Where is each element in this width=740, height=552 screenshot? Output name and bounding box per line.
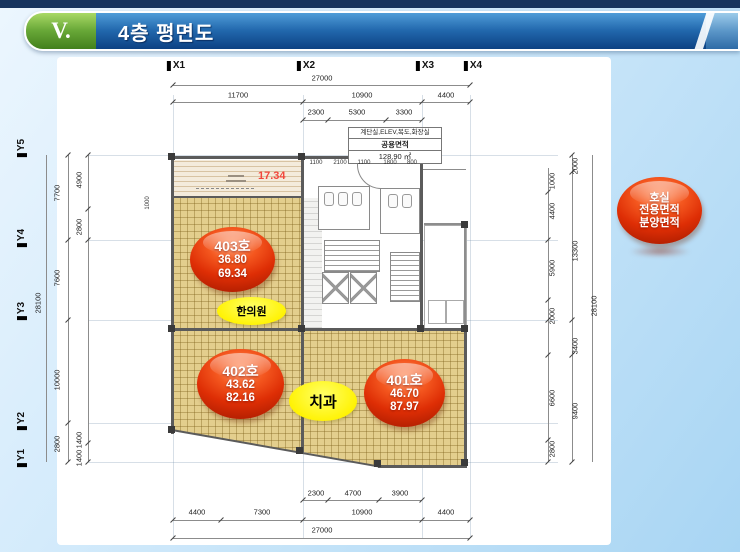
dim: 4400	[548, 203, 557, 220]
column	[417, 325, 424, 332]
column	[461, 221, 468, 228]
axis-y1: Y1	[17, 449, 27, 467]
room-402-exclusive-area: 43.62	[226, 379, 255, 392]
dim: 7600	[53, 270, 62, 287]
dim: 800	[407, 160, 417, 166]
column	[374, 460, 381, 467]
dim: 1000	[145, 196, 151, 209]
dim: 2300	[308, 108, 325, 117]
slide: V. 4층 평면도	[0, 0, 740, 552]
column	[168, 153, 175, 160]
legend-line-sale: 분양면적	[639, 217, 679, 230]
dim-line	[46, 155, 47, 462]
dim: 5900	[548, 260, 557, 277]
deck-dashed-line	[196, 188, 254, 189]
dim: 1100	[310, 160, 323, 166]
dim-line	[173, 538, 470, 539]
toilet-fixture	[324, 192, 334, 206]
shaft-box	[446, 300, 464, 324]
dim-line	[303, 120, 422, 121]
dim: 10900	[352, 91, 373, 100]
room-403-exclusive-area: 36.80	[218, 254, 247, 267]
dim: 1400	[75, 432, 84, 449]
dim: 1800	[383, 160, 396, 166]
room-403-sale-area: 69.34	[218, 268, 247, 281]
wall-wing-right	[464, 225, 466, 330]
tenant-bubble-hanuiwon: 한의원	[217, 297, 286, 325]
wall-terrace-bottom	[173, 196, 303, 198]
room-402-label: 402호	[222, 363, 258, 379]
dim-line	[88, 155, 89, 462]
dim: 10900	[352, 508, 373, 517]
room-bubble-402: 402호 43.62 82.16	[197, 349, 284, 419]
axis-x3: X3	[416, 61, 434, 71]
dim: 2800	[548, 441, 557, 458]
wall-bottom	[378, 465, 467, 468]
dim: 2800	[75, 219, 84, 236]
deck-label-lines	[228, 175, 244, 177]
stair-flight-main	[324, 240, 380, 272]
dim: 2000	[571, 158, 580, 175]
axis-y4: Y4	[17, 229, 27, 247]
elevator-shaft-2	[350, 272, 377, 304]
wall-wing-top	[424, 223, 466, 225]
dim: 9400	[571, 403, 580, 420]
legend-bubble-shadow	[629, 246, 691, 257]
dim: 4400	[438, 508, 455, 517]
gridline-x4	[470, 95, 471, 538]
toilet-fixture	[388, 194, 398, 208]
dim: 3400	[571, 338, 580, 355]
header-title-bar: 4층 평면도	[96, 13, 738, 49]
room-bubble-403: 403호 36.80 69.34	[190, 227, 275, 292]
dim-line	[303, 500, 422, 501]
section-number-badge: V.	[26, 13, 96, 49]
elevator-shaft-1	[322, 272, 349, 304]
axis-x4: X4	[464, 61, 482, 71]
room-bubble-401: 401호 46.70 87.97	[364, 359, 445, 427]
terrace-area-value: 17.34	[258, 170, 286, 182]
column	[298, 153, 305, 160]
room-402-sale-area: 82.16	[226, 392, 255, 405]
toilet-fixture	[352, 192, 362, 206]
common-area-table: 계단실,ELEV,복도,화장실 공용면적 128.90 ㎡	[348, 127, 442, 164]
column	[461, 325, 468, 332]
dim: 2100	[333, 160, 346, 166]
dim: 7700	[53, 185, 62, 202]
shaft-box	[428, 300, 446, 324]
dim: 2000	[548, 308, 557, 325]
axis-y2: Y2	[17, 412, 27, 430]
stair-flight-secondary	[390, 252, 420, 302]
tenant-chigwa-label: 치과	[309, 391, 337, 412]
dim-line	[68, 155, 69, 462]
dim-line	[173, 85, 470, 86]
axis-x1: X1	[167, 61, 185, 71]
axis-y5: Y5	[17, 139, 27, 157]
dim: 1100	[358, 160, 371, 166]
legend-line-exclusive: 전용면적	[639, 204, 679, 217]
page-title: 4층 평면도	[96, 17, 214, 46]
dim: 2800	[53, 436, 62, 453]
dim: 7300	[254, 508, 271, 517]
dim: 1000	[548, 173, 557, 190]
dim-right-total: 28100	[590, 296, 599, 317]
dim: 3900	[392, 489, 409, 498]
dim: 4400	[438, 91, 455, 100]
top-border-strip	[0, 0, 740, 8]
dim: 11700	[228, 91, 248, 100]
dim-bottom-total: 27000	[312, 526, 333, 535]
tenant-hanuiwon-label: 한의원	[236, 303, 266, 319]
toilet-fixture	[402, 194, 412, 208]
dim: 4700	[345, 489, 362, 498]
dim: 2300	[308, 489, 325, 498]
dim: 3300	[396, 108, 413, 117]
dim: 6600	[548, 390, 557, 407]
dim: 13300	[571, 241, 580, 262]
toilet-room-right	[380, 188, 420, 234]
legend-bubble: 호실 전용면적 분양면적	[617, 177, 702, 244]
dim: 5300	[349, 108, 366, 117]
wall-right	[464, 328, 467, 468]
column	[168, 325, 175, 332]
dim-line	[173, 102, 470, 103]
column	[296, 447, 303, 454]
common-area-title: 공용면적	[349, 139, 441, 151]
header-bar: V. 4층 평면도	[24, 11, 740, 51]
legend-line-room: 호실	[649, 192, 669, 205]
dim: 4900	[75, 172, 84, 189]
common-area-rooms: 계단실,ELEV,복도,화장실	[349, 128, 441, 139]
axis-x2: X2	[297, 61, 315, 71]
tenant-bubble-chigwa: 치과	[289, 381, 357, 421]
room-401-sale-area: 87.97	[390, 401, 419, 414]
dim: 1400	[75, 450, 84, 467]
column	[461, 459, 468, 466]
dim-top-total: 27000	[312, 74, 333, 83]
dim: 10000	[53, 370, 62, 391]
gridline-y1	[88, 462, 558, 463]
deck-label-lines	[226, 180, 246, 182]
section-number: V.	[51, 18, 70, 44]
axis-y3: Y3	[17, 302, 27, 320]
wall-core-right	[420, 158, 423, 330]
column	[298, 325, 305, 332]
dim-left-total: 28100	[34, 293, 43, 314]
dim: 4400	[189, 508, 206, 517]
room-403-label: 403호	[214, 238, 250, 254]
toilet-fixture	[338, 192, 348, 206]
room-401-exclusive-area: 46.70	[390, 388, 419, 401]
column	[168, 426, 175, 433]
room-401-label: 401호	[386, 372, 422, 388]
